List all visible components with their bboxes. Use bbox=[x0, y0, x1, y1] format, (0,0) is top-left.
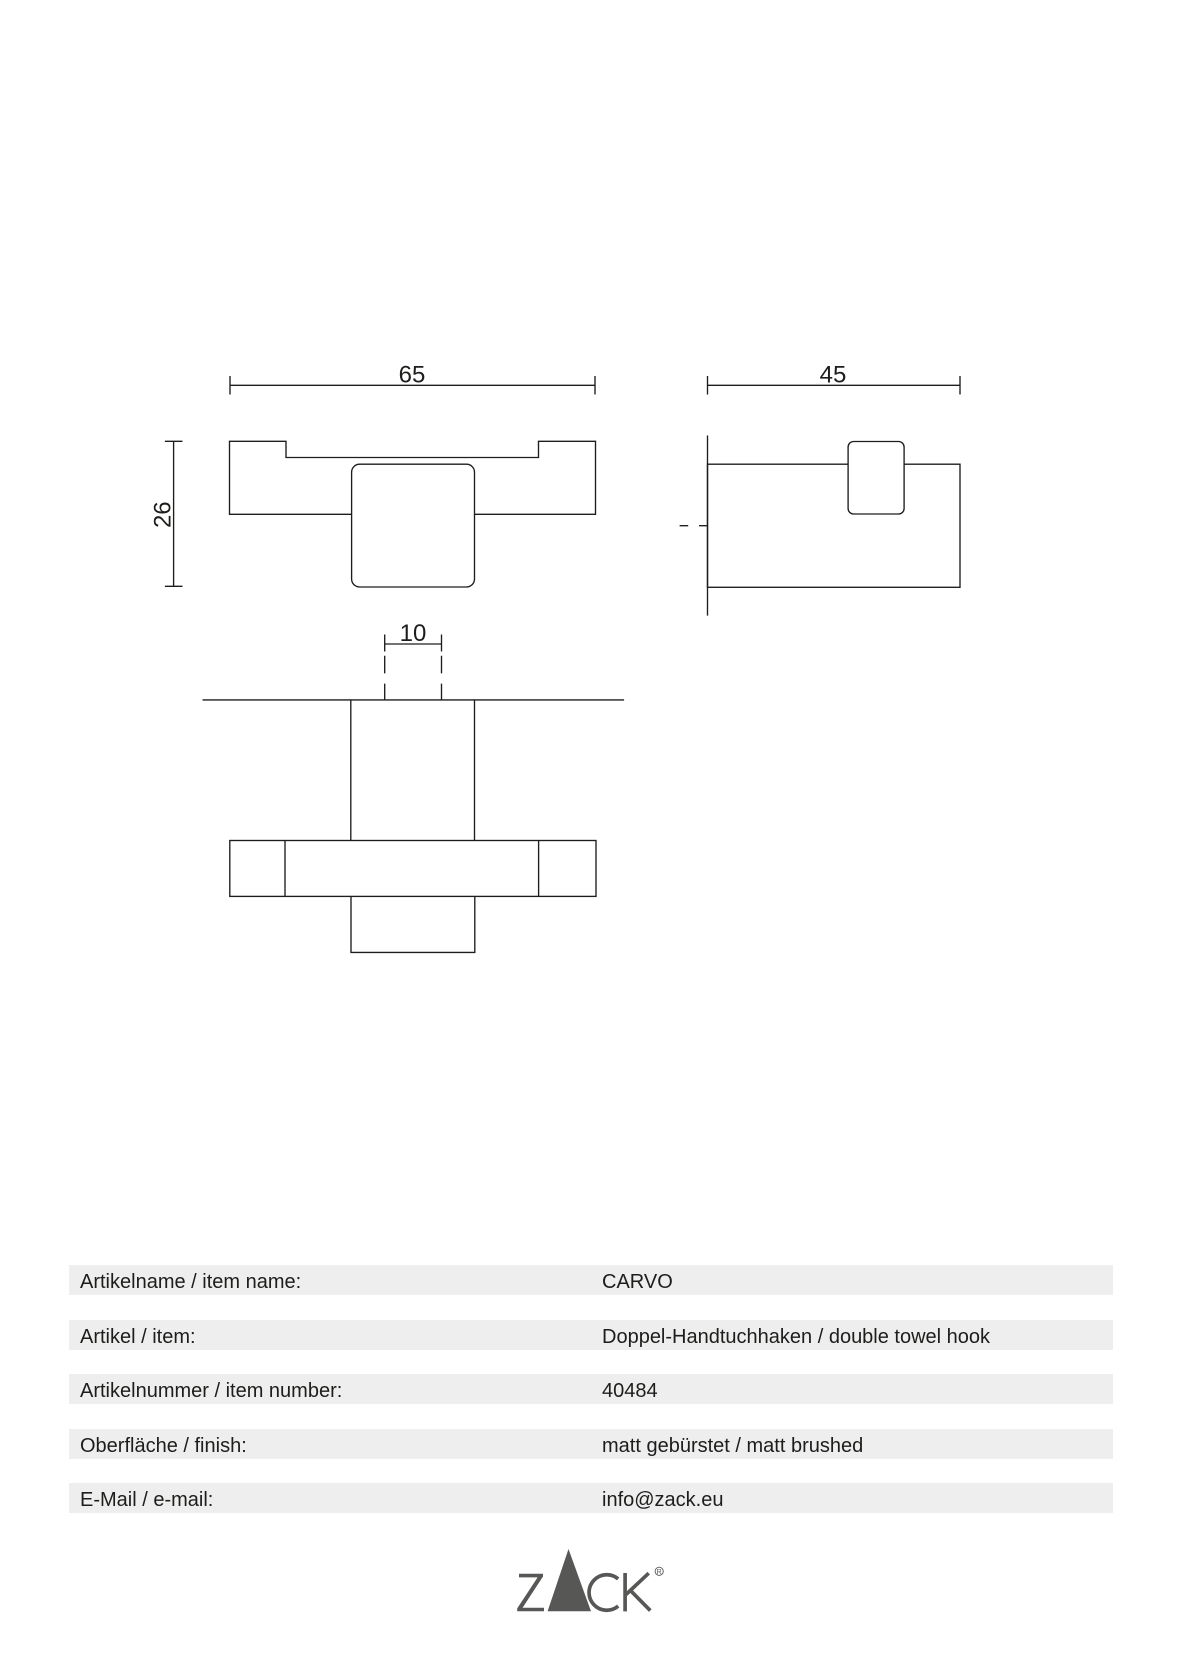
svg-text:10: 10 bbox=[400, 620, 427, 647]
svg-text:26: 26 bbox=[150, 501, 177, 528]
svg-text:R: R bbox=[657, 1569, 662, 1576]
svg-text:65: 65 bbox=[399, 362, 426, 389]
svg-text:45: 45 bbox=[820, 362, 847, 389]
